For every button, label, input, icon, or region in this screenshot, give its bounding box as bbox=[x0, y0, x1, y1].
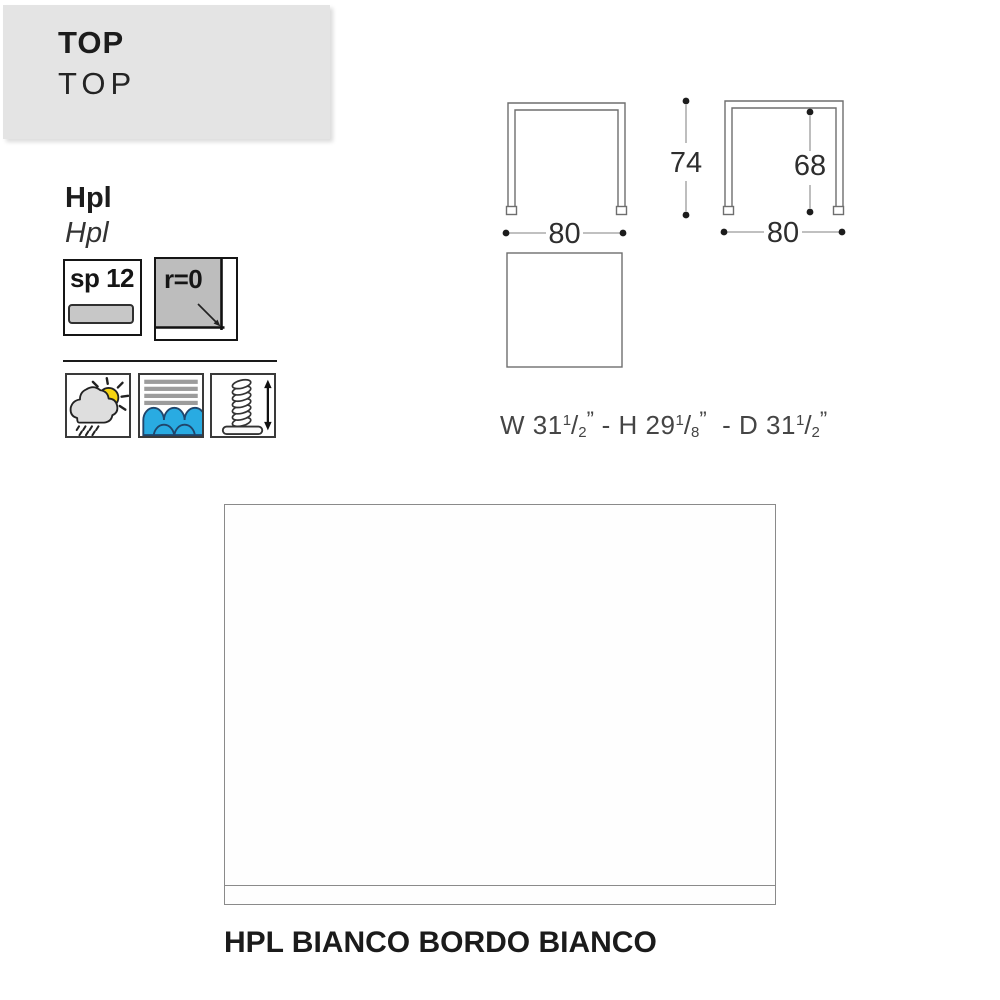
finish-swatch bbox=[224, 504, 776, 905]
material-name-italic: Hpl bbox=[65, 215, 112, 251]
finish-label: HPL BIANCO BORDO BIANCO bbox=[224, 926, 657, 960]
table-top-view bbox=[507, 253, 622, 367]
fraction-slash: / bbox=[684, 410, 691, 440]
page-title: TOP bbox=[58, 23, 330, 64]
sun-cloud-rain-icon bbox=[67, 375, 129, 436]
adjustable-foot-icon bbox=[212, 375, 274, 436]
thickness-spec-box: sp 12 bbox=[63, 259, 142, 336]
inch-mark: ” bbox=[587, 407, 594, 432]
table-front-view bbox=[507, 103, 627, 215]
feature-weather bbox=[65, 373, 131, 438]
imperial-dimensions: W 311/2” - H 291/8” - D 311/2” bbox=[500, 407, 827, 441]
dimension-labels: 80 74 68 80 bbox=[548, 147, 826, 250]
front-width-value: 80 bbox=[548, 218, 580, 250]
dimension-drawings: 80 74 68 80 bbox=[480, 85, 880, 385]
feature-water bbox=[138, 373, 204, 438]
inch-mark: ” bbox=[820, 407, 827, 432]
fraction-slash: / bbox=[804, 410, 811, 440]
edge-radius-spec-box: r=0 bbox=[154, 257, 238, 341]
header-banner: TOP TOP bbox=[3, 5, 330, 139]
thickness-label: sp 12 bbox=[70, 263, 134, 294]
front-height-value: 74 bbox=[670, 147, 702, 179]
side-clearance-value: 68 bbox=[794, 150, 826, 182]
catalog-page: TOP TOP Hpl Hpl sp 12 r=0 bbox=[0, 0, 1000, 1000]
height-imperial: - H 29 bbox=[594, 410, 676, 440]
panel-thickness-icon bbox=[68, 304, 134, 324]
width-imperial: W 31 bbox=[500, 410, 563, 440]
feature-adjustable-foot bbox=[210, 373, 276, 438]
page-subtitle: TOP bbox=[58, 64, 330, 104]
edge-radius-label: r=0 bbox=[164, 264, 202, 295]
inch-mark: ” bbox=[699, 407, 706, 432]
swatch-edge-line bbox=[225, 885, 775, 886]
depth-imperial: - D 31 bbox=[707, 410, 796, 440]
side-width-value: 80 bbox=[767, 217, 799, 249]
material-name: Hpl bbox=[65, 182, 112, 215]
water-waves-icon bbox=[140, 375, 202, 436]
divider-line bbox=[63, 360, 277, 362]
material-section: Hpl Hpl bbox=[65, 182, 112, 252]
